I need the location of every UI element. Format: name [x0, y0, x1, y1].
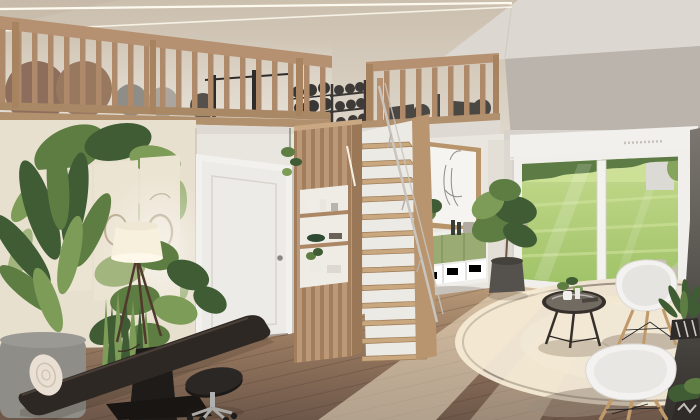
railing-post [296, 58, 303, 116]
railing-post [150, 40, 156, 114]
small-vase [575, 288, 580, 299]
interior-render [0, 0, 700, 420]
door-slab [202, 161, 286, 341]
books [447, 268, 458, 275]
railing-post [493, 55, 499, 120]
chair-seat-inner [622, 265, 671, 306]
small-white-pot [563, 291, 572, 300]
white-planter [310, 261, 321, 272]
dark-bowl [307, 234, 325, 242]
book-stack [329, 233, 342, 239]
railing-post [12, 22, 19, 108]
bottle [457, 222, 461, 235]
white-stack [327, 265, 341, 273]
door-handle [277, 255, 283, 261]
stool-column [210, 392, 215, 407]
lamp-shade-glow [111, 253, 163, 263]
window-center-stile [597, 160, 606, 288]
screenshot-root [0, 0, 700, 420]
pot-shadow [488, 292, 528, 301]
railing-post [366, 64, 373, 130]
upper-wall-right [505, 46, 700, 139]
books [469, 265, 481, 272]
chair-seat-inner [594, 350, 667, 393]
column-side-face [352, 123, 362, 356]
gray-cup [331, 203, 338, 211]
bottle [451, 220, 455, 235]
white-vase [320, 199, 326, 211]
white-vase [308, 197, 316, 211]
striped-pot [670, 318, 700, 340]
